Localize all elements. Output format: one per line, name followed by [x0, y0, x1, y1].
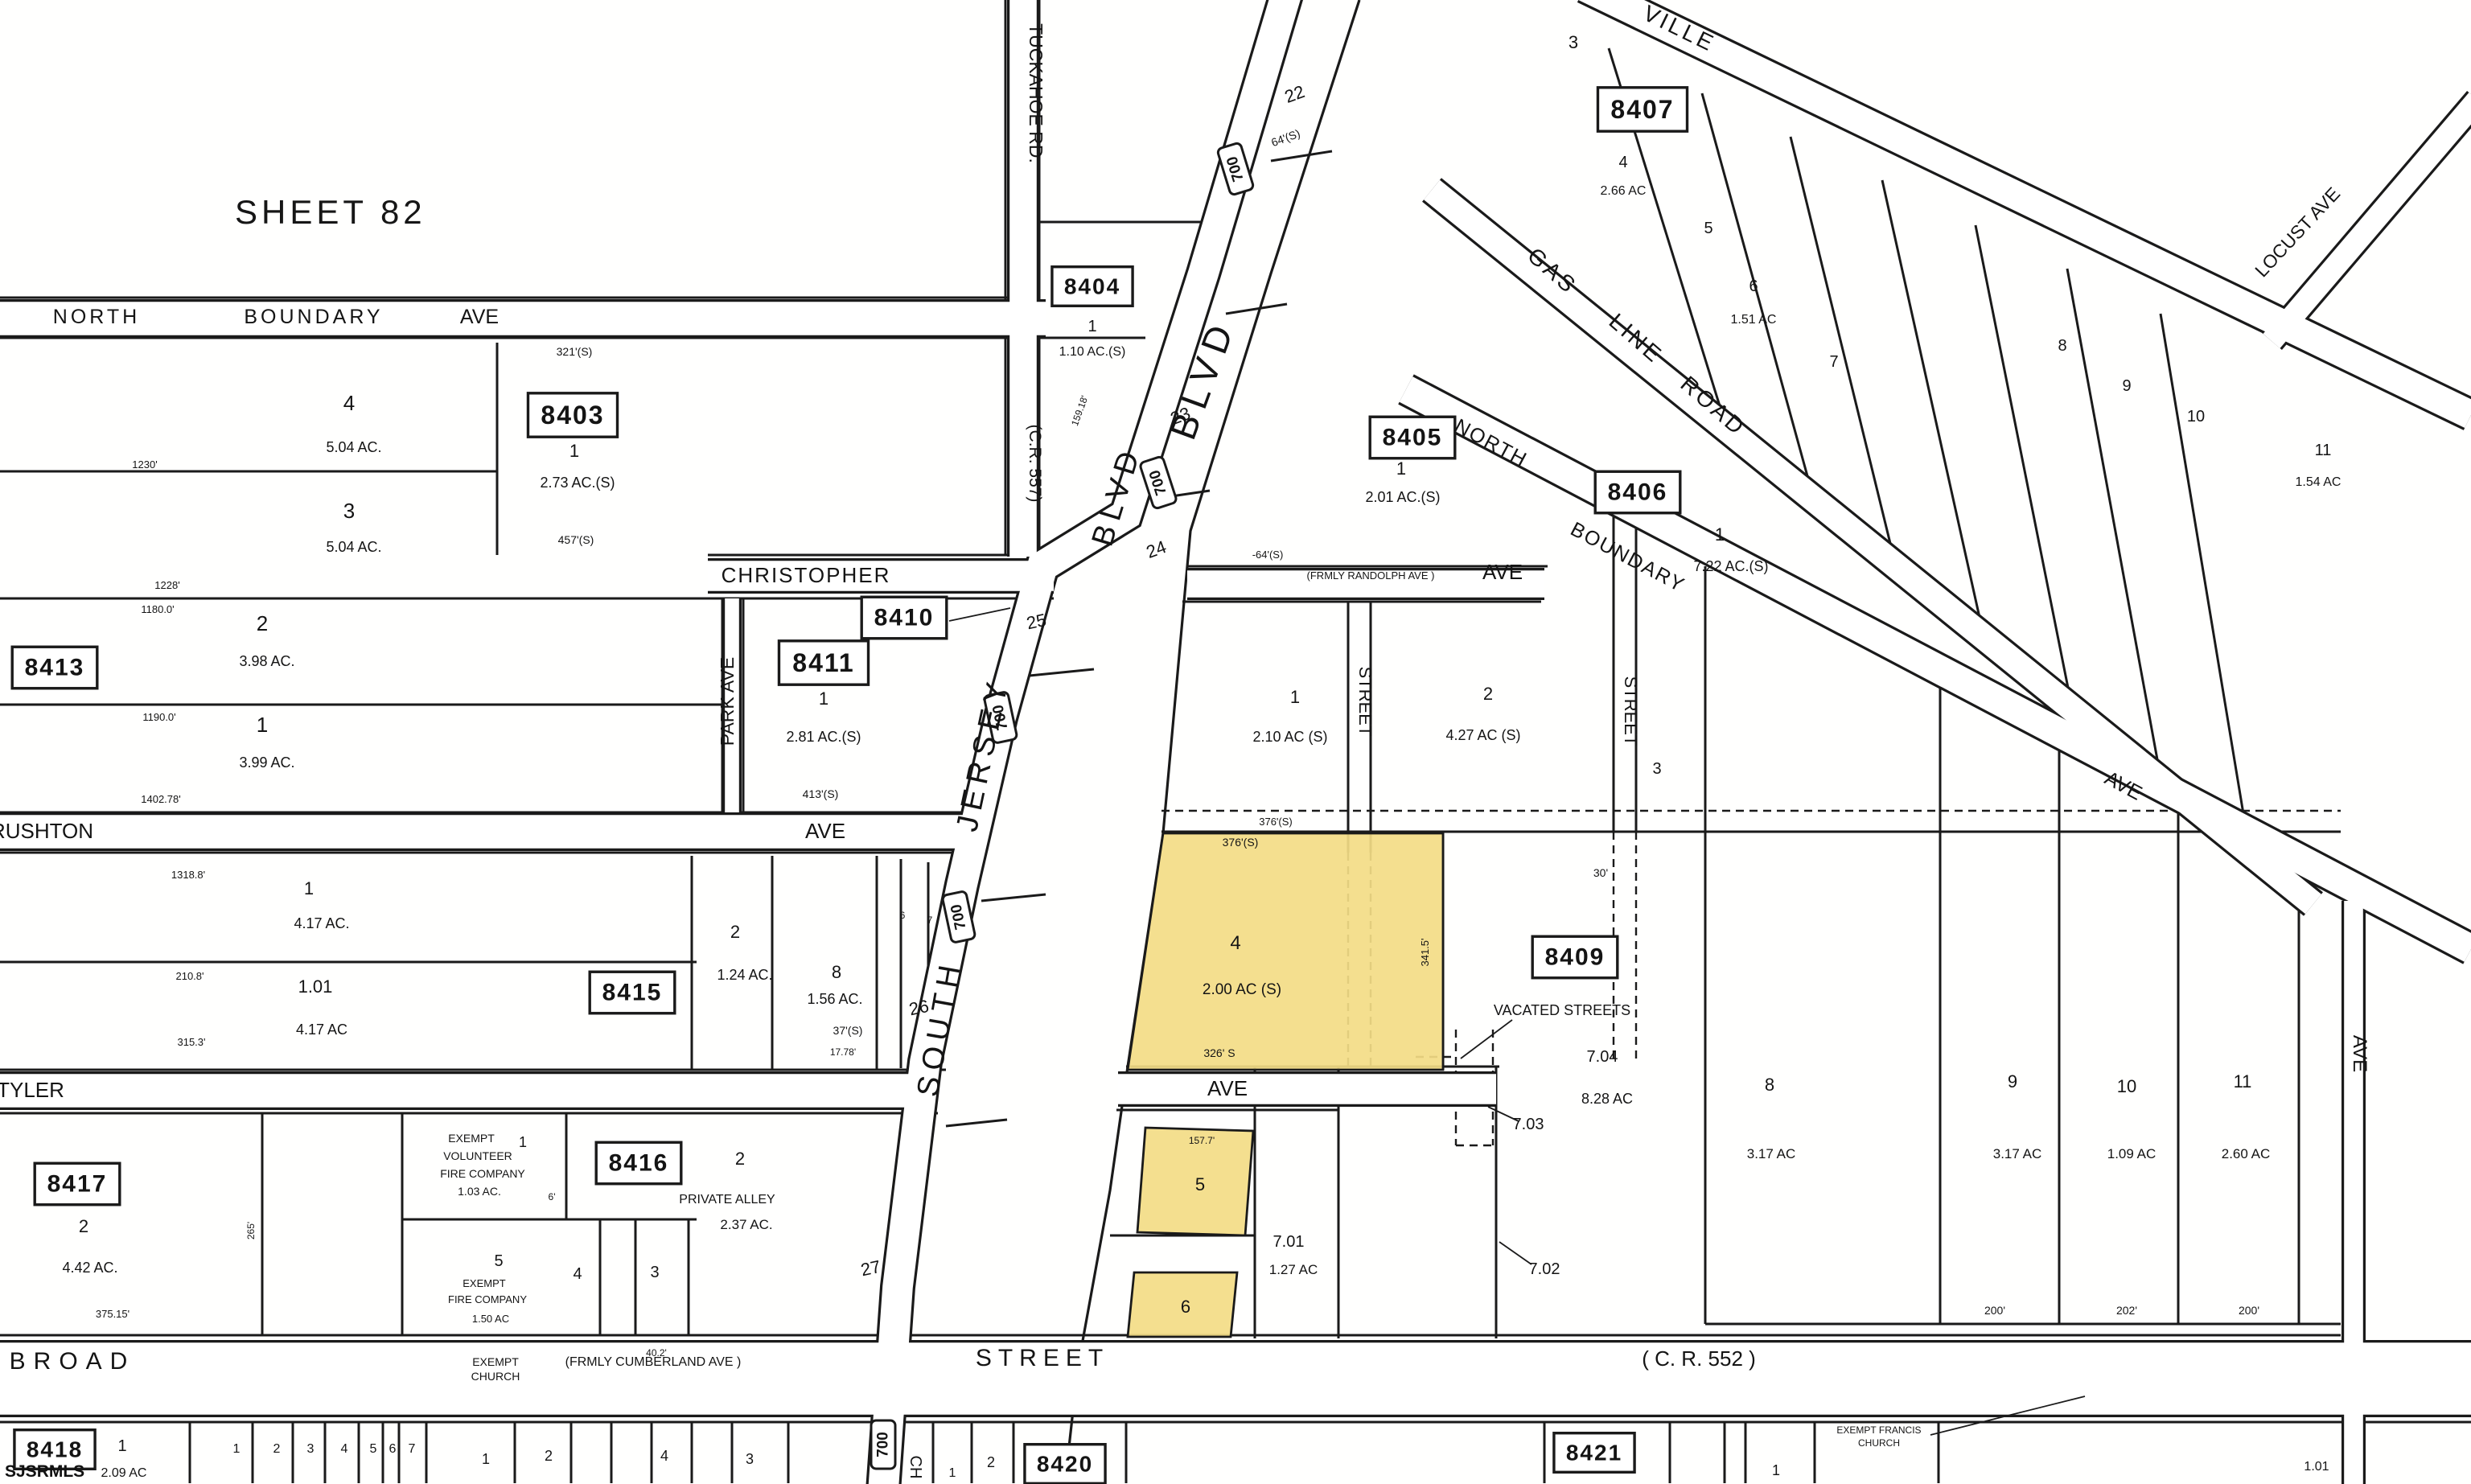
lot-number: 4	[573, 1265, 582, 1283]
highlighted-parcel-lot-4	[1128, 833, 1443, 1070]
dimension-label: 1180.0'	[141, 603, 174, 615]
lot-number: 6	[389, 1442, 397, 1456]
block-label-8406: 8406	[1595, 471, 1680, 513]
lot-acreage: 4.17 AC	[296, 1022, 347, 1038]
lot-number: 2	[273, 1442, 281, 1456]
lot-number: 5	[1195, 1174, 1205, 1194]
lot-number: 8	[832, 962, 841, 982]
annotation-vacated-streets: VACATED STREETS	[1494, 1002, 1630, 1018]
dimension-label: 1318.8'	[171, 869, 205, 881]
street-label-partial: CH	[907, 1456, 924, 1479]
lot-acreage: 1.24 AC.	[717, 967, 772, 983]
dimension-label: 6'	[549, 1191, 556, 1202]
parcel-line	[1030, 669, 1094, 676]
route-700-shield: 700	[871, 1420, 895, 1469]
block-number: 8416	[609, 1150, 669, 1177]
block-label-8410: 8410	[861, 597, 947, 639]
lot-number: 1	[1772, 1462, 1780, 1478]
parcel-line	[946, 1120, 1007, 1126]
lot-number: 11	[2315, 442, 2332, 459]
lot-acreage: 2.73 AC.(S)	[540, 475, 615, 491]
dimension-label: 376'(S)	[1259, 816, 1293, 828]
lot-number: 1	[304, 878, 314, 898]
lot-number: 6	[1181, 1297, 1190, 1317]
lot-acreage: 7.22 AC.(S)	[1693, 558, 1768, 574]
dimension-label: 375.15'	[96, 1308, 130, 1320]
lot-acreage: 3.99 AC.	[239, 754, 294, 771]
route-shield-number: 700	[875, 1432, 892, 1457]
dimension-label: 1228'	[154, 579, 179, 591]
block-label-8405: 8405	[1370, 417, 1455, 458]
street-label-street-2: STREET	[1621, 676, 1641, 746]
dimension-label: 200'	[2239, 1304, 2259, 1317]
lot-number: 24	[1144, 536, 1170, 562]
lot-number: 7.03	[1513, 1116, 1544, 1133]
tax-map-sheet: 700700700700700 840384048405840684078409…	[0, 0, 2471, 1484]
lot-number: 22	[1282, 81, 1308, 107]
block-number: 8417	[47, 1171, 108, 1198]
annotation-exempt-church: CHURCH	[1858, 1437, 1900, 1449]
lot-acreage: 2.81 AC.(S)	[786, 729, 861, 745]
lot-number: 2	[257, 611, 268, 635]
lot-number: 3	[307, 1442, 315, 1456]
lot-number: 6	[1749, 277, 1758, 295]
lot-number: 7.01	[1273, 1233, 1305, 1251]
lot-number: 11	[2234, 1071, 2252, 1091]
block-number: 8406	[1608, 479, 1668, 506]
lot-acreage: 2.60 AC	[2222, 1146, 2271, 1161]
dimension-label: 376'(S)	[1223, 836, 1259, 849]
block-label-8407: 8407	[1597, 88, 1687, 131]
lot-number: 1	[482, 1451, 490, 1467]
annotation-exempt: FIRE COMPANY	[440, 1167, 525, 1180]
dimension-label: 1190.0'	[142, 711, 175, 723]
lot-number: 8	[2058, 337, 2066, 355]
block-label-8416: 8416	[596, 1142, 681, 1184]
lot-number: 7.02	[1529, 1260, 1560, 1278]
lot-acreage: 3.17 AC	[1747, 1146, 1796, 1161]
street-label-broad: BROAD	[10, 1348, 136, 1375]
lot-number: 6	[900, 910, 906, 921]
lot-acreage: 1.09 AC	[2107, 1146, 2156, 1161]
lot-acreage: 2.09 AC	[101, 1466, 147, 1480]
parcel-line	[1271, 151, 1332, 161]
lot-number: 2	[730, 922, 740, 942]
lot-number: 7	[1829, 353, 1838, 371]
lot-acreage: 4.42 AC.	[62, 1260, 117, 1276]
lot-number: 5	[370, 1442, 377, 1456]
lot-number: 4	[1618, 154, 1627, 171]
lot-number: 3	[1569, 32, 1578, 52]
lot-number: 10	[2117, 1076, 2136, 1096]
road-surface-north-boundary-ave-diagonal	[1406, 389, 2471, 949]
lot-number: 1	[1715, 524, 1725, 545]
lot-acreage: 5.04 AC.	[326, 539, 381, 555]
annotation-exempt-church: EXEMPT	[472, 1355, 519, 1368]
dimension-label: 159.18'	[1069, 394, 1090, 427]
lot-acreage: 1.54 AC	[2296, 475, 2341, 489]
dimension-label: -64'(S)	[1252, 549, 1284, 561]
lot-number: 3	[1652, 760, 1661, 778]
annotation-frmly-cumberland: (FRMLY CUMBERLAND AVE )	[565, 1355, 742, 1369]
lot-number: 9	[2008, 1071, 2017, 1091]
street-label-broad-street: STREET	[976, 1345, 1109, 1371]
lot-acreage: 1.56 AC.	[807, 991, 862, 1007]
dimension-label: 265'	[245, 1222, 257, 1239]
dimension-label: 200'	[1984, 1304, 2005, 1317]
lot-acreage: 4.17 AC.	[294, 915, 349, 931]
street-label-north-boundary: NORTH	[53, 306, 140, 328]
lot-acreage: 1.27 AC	[1269, 1262, 1318, 1277]
annotation-exempt: FIRE COMPANY	[448, 1293, 527, 1305]
lot-number: 1	[1087, 318, 1096, 335]
lot-number: 1	[569, 441, 579, 461]
street-label-christopher-ave: AVE	[1482, 560, 1523, 584]
lot-number: 5	[1704, 220, 1712, 237]
block-label-8403: 8403	[528, 393, 617, 437]
block-label-8404: 8404	[1052, 267, 1133, 306]
lot-number: 1	[257, 713, 268, 737]
lot-number: 4	[343, 391, 355, 415]
lot-acreage: 4.27 AC (S)	[1445, 727, 1520, 743]
leader-line	[949, 608, 1010, 621]
street-label-tyler-ave: AVE	[1207, 1076, 1248, 1100]
lot-acreage: 2.10 AC (S)	[1252, 729, 1327, 745]
dimension-label: 321'(S)	[557, 345, 593, 358]
lot-number: 1	[519, 1134, 527, 1150]
lot-number: 1	[949, 1466, 956, 1480]
dimension-label: 157.7'	[1189, 1135, 1215, 1146]
dimension-label: 413'(S)	[803, 787, 839, 800]
lot-number: 5	[494, 1252, 503, 1270]
lot-number: 7	[927, 915, 933, 926]
lot-number: 2	[545, 1448, 553, 1464]
dimension-label: 64'(S)	[1269, 126, 1301, 149]
dimension-label: 1402.78'	[141, 793, 180, 805]
lot-number: 2	[1483, 684, 1493, 704]
lot-acreage: 1.03 AC.	[458, 1185, 501, 1198]
annotation-exempt: EXEMPT	[463, 1277, 506, 1289]
lot-acreage: 8.28 AC	[1581, 1091, 1633, 1107]
dimension-label: 17.78'	[830, 1046, 856, 1058]
street-label-rushton: RUSHTON	[0, 819, 93, 843]
leader-line	[1461, 1020, 1512, 1059]
road-surface-ville-road	[1585, 0, 2471, 415]
street-label-north-boundary: AVE	[460, 306, 499, 328]
block-label-8421: 8421	[1554, 1433, 1634, 1473]
block-number: 8409	[1545, 944, 1606, 971]
lot-number: 3	[343, 499, 355, 523]
lot-number: 25	[1025, 610, 1048, 634]
annotation-exempt: EXEMPT	[448, 1132, 495, 1145]
block-number: 8415	[602, 980, 663, 1006]
parcel-line	[981, 894, 1046, 901]
lot-number: 2	[79, 1216, 88, 1236]
block-number: 8403	[541, 401, 604, 430]
street-label-tyler: TYLER	[0, 1078, 64, 1102]
block-label-8417: 8417	[35, 1163, 120, 1205]
lot-acreage: 2.00 AC (S)	[1203, 981, 1281, 998]
annotation-exempt: VOLUNTEER	[443, 1149, 512, 1162]
lot-number: 10	[2187, 408, 2205, 425]
lot-number: 1	[233, 1442, 241, 1456]
parcel-line	[2161, 314, 2249, 848]
lot-number: 1.01	[2304, 1460, 2329, 1474]
block-label-8409: 8409	[1532, 936, 1618, 978]
block-number: 8410	[874, 605, 935, 631]
lot-acreage: 1.50 AC	[472, 1313, 509, 1325]
lot-number: 7	[409, 1442, 416, 1456]
lot-number: 4	[1230, 932, 1240, 954]
street-label-street-1: STREET	[1355, 667, 1375, 737]
lot-number: 1	[117, 1437, 126, 1455]
lot-number: 3	[746, 1451, 754, 1467]
lot-acreage: 2.66 AC	[1601, 184, 1647, 198]
lot-number: 7.04	[1587, 1048, 1618, 1066]
block-number: 8407	[1610, 95, 1674, 124]
dimension-label: 210.8'	[175, 970, 204, 982]
dimension-label: 315.3'	[177, 1036, 205, 1048]
watermark: SJSRMLS	[5, 1462, 84, 1482]
lot-number: 26	[907, 996, 931, 1020]
lot-number: 4	[660, 1448, 668, 1464]
street-label-rushton-ave: AVE	[805, 819, 845, 843]
annotation-exempt-church: EXEMPT FRANCIS	[1836, 1424, 1921, 1436]
dimension-label: 341.5'	[1419, 938, 1431, 966]
lot-number: 1.01	[298, 976, 333, 997]
block-number: 8418	[27, 1437, 83, 1462]
street-label-park-ave: PARK AVE	[717, 657, 738, 746]
block-label-8413: 8413	[12, 647, 97, 689]
street-label-christopher: CHRISTOPHER	[722, 563, 891, 587]
block-number: 8405	[1383, 425, 1443, 451]
block-number: 8404	[1064, 274, 1120, 299]
lot-acreage: 3.98 AC.	[239, 653, 294, 669]
annotation-private-alley: PRIVATE ALLEY	[679, 1193, 775, 1207]
street-label-north-boundary: BOUNDARY	[244, 306, 383, 328]
street-label-cr-557: (C.R. 557)	[1026, 425, 1044, 503]
block-label-8411: 8411	[779, 641, 868, 684]
dimension-label: 30'	[1593, 866, 1608, 879]
lot-acreage: 3.17 AC	[1993, 1146, 2042, 1161]
leader-line	[1499, 1242, 1532, 1264]
lot-number: 9	[2122, 377, 2131, 395]
lot-number: 8	[1765, 1075, 1774, 1095]
dimension-label: 1230'	[132, 458, 157, 471]
annotation-exempt-church: CHURCH	[471, 1370, 520, 1383]
street-label-ave-right: AVE	[2349, 1035, 2370, 1072]
street-label-cr-552: ( C. R. 552 )	[1642, 1346, 1756, 1371]
parcel-line	[1226, 304, 1287, 314]
lot-acreage: 2.01 AC.(S)	[1365, 489, 1440, 505]
block-number: 8413	[25, 655, 85, 681]
dimension-label: 202'	[2116, 1304, 2137, 1317]
dimension-label: 326' S	[1203, 1046, 1235, 1059]
lot-number: 27	[859, 1256, 882, 1281]
block-number: 8421	[1566, 1441, 1622, 1466]
lot-number: 1	[1290, 687, 1300, 707]
block-number: 8420	[1037, 1452, 1093, 1477]
lot-acreage: 1.10 AC.(S)	[1059, 345, 1126, 359]
dimension-label: 457'(S)	[558, 533, 594, 546]
sheet-title: SHEET 82	[235, 193, 426, 232]
lot-number: 2	[987, 1454, 995, 1470]
lot-number: 2	[735, 1149, 745, 1169]
lot-number: 4	[341, 1442, 348, 1456]
lot-number: 3	[650, 1264, 659, 1281]
lot-number: 1	[1396, 458, 1406, 479]
street-label-tuckahoe-rd: TUCKAHOE RD.	[1026, 23, 1046, 163]
block-number: 8411	[792, 648, 854, 677]
lot-acreage: 5.04 AC.	[326, 439, 381, 455]
street-label-frmly-randolph: (FRMLY RANDOLPH AVE )	[1307, 569, 1435, 582]
dimension-label: 37'(S)	[833, 1024, 863, 1037]
lot-acreage: 2.37 AC.	[720, 1217, 772, 1232]
block-label-8420: 8420	[1025, 1445, 1105, 1484]
lot-number: 1	[819, 689, 828, 709]
lot-acreage: 1.51 AC	[1731, 313, 1777, 327]
block-label-8415: 8415	[590, 972, 675, 1013]
